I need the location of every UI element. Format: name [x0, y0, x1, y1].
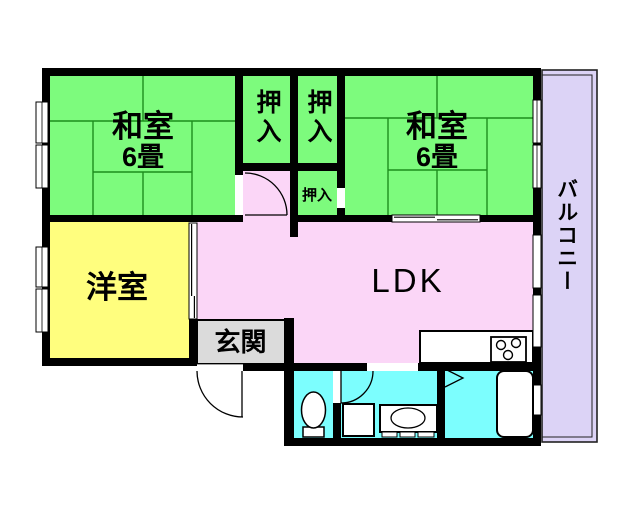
youshitsu-label: 洋室	[47, 271, 187, 304]
wall-south-int-b	[418, 363, 541, 371]
wall-mid-east-a	[345, 215, 392, 222]
wall-toilet-wash	[333, 403, 341, 438]
oshiire-right-label: 押入	[304, 89, 331, 147]
ldk-label: LDK	[338, 263, 478, 299]
sliding-door-washitsu2	[392, 215, 480, 222]
washitsu-left-size: 6畳	[53, 143, 233, 172]
window-ldk-a	[533, 235, 541, 288]
wall-closet-mid	[290, 68, 298, 237]
wall-bottom-wet	[284, 438, 541, 446]
opening-washitsu1	[235, 175, 243, 215]
wall-oshiire-small-bottom	[298, 215, 337, 222]
vanity-sink-icon	[380, 405, 437, 437]
oshiire-left-label: 押入	[253, 89, 280, 147]
kitchen-counter	[420, 331, 533, 363]
opening-ldk-washroom	[367, 363, 418, 371]
floor-plan: 和室 6畳 和室 6畳 押入 押入 押入 洋室 玄関 LDK バルコニー	[0, 0, 640, 512]
genkan-label: 玄関	[197, 328, 284, 356]
wall-wash-bath	[437, 363, 445, 438]
wall-genkan-right	[284, 318, 294, 446]
opening-toilet	[333, 371, 341, 403]
window-bath	[533, 385, 541, 415]
bathtub-icon	[497, 371, 533, 437]
wall-south-west	[42, 358, 198, 366]
washitsu-left-name: 和室	[53, 110, 233, 143]
wall-washitsu2-left-a	[337, 68, 345, 188]
balcony-label: バルコニー	[554, 178, 577, 293]
genkan-step-line	[197, 319, 284, 321]
wall-washitsu1-right	[235, 68, 243, 175]
washitsu-right-label: 和室 6畳	[347, 110, 527, 173]
window-ldk-b	[533, 295, 541, 347]
wall-mid-west	[42, 215, 243, 222]
sliding-door-youshitsu	[189, 223, 197, 319]
toilet-icon	[302, 392, 326, 437]
wall-mid-east-b	[480, 215, 533, 222]
wall-washitsu2-left-b	[337, 208, 345, 222]
washitsu-right-name: 和室	[347, 110, 527, 143]
oshiire-small-label: 押入	[294, 188, 340, 204]
wall-south-int-a	[294, 363, 367, 371]
floor-plan-drawing	[0, 0, 640, 512]
washitsu-left-label: 和室 6畳	[53, 110, 233, 173]
entrance-door-swing	[197, 371, 243, 417]
washing-machine-pan-icon	[343, 404, 374, 436]
wall-below-closets	[243, 163, 345, 171]
washitsu-right-size: 6畳	[347, 143, 527, 172]
